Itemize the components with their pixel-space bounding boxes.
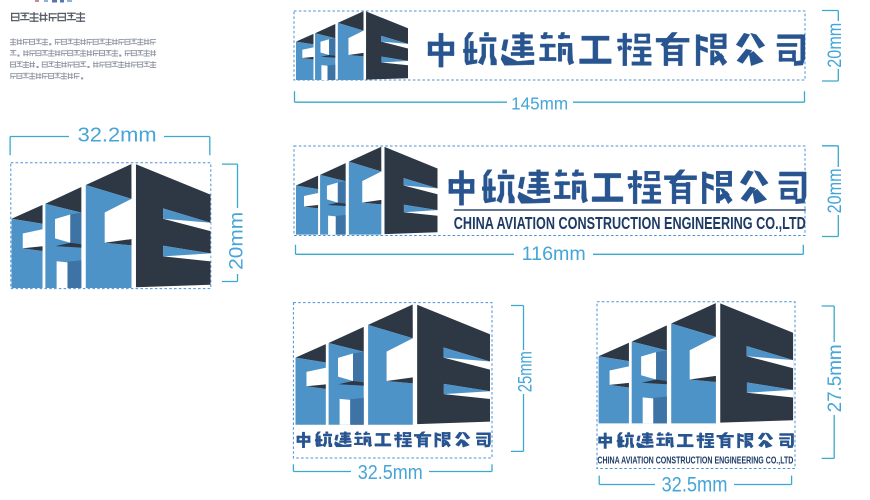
svg-text:32.5mm: 32.5mm [358,462,423,484]
svg-text:20mm: 20mm [225,212,247,270]
svg-text:32.2mm: 32.2mm [78,125,157,147]
svg-text:116mm: 116mm [522,243,586,265]
svg-text:27.5mm: 27.5mm [825,344,846,412]
svg-text:25mm: 25mm [516,351,537,392]
svg-text:CHINA AVIATION CONSTRUCTION EN: CHINA AVIATION CONSTRUCTION ENGINEERING … [454,213,806,233]
svg-text:20mm: 20mm [825,23,846,68]
svg-text:20mm: 20mm [825,168,846,213]
svg-text:145mm: 145mm [511,93,568,113]
svg-text:CHINA AVIATION CONSTRUCTION EN: CHINA AVIATION CONSTRUCTION ENGINEERING … [597,456,793,467]
svg-text:32.5mm: 32.5mm [662,474,728,497]
